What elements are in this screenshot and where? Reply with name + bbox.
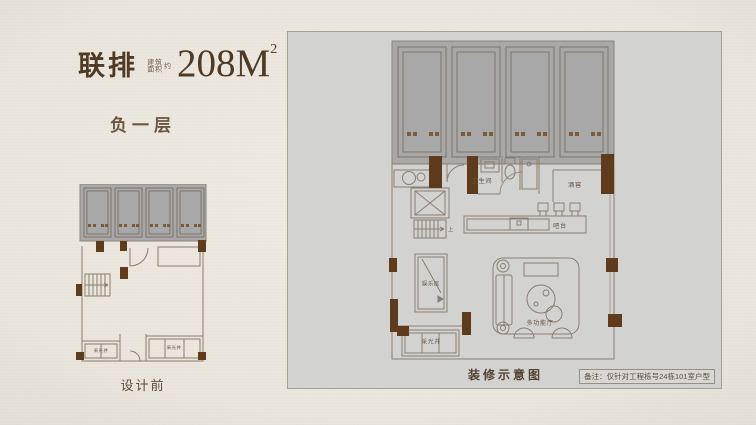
before-plan-svg (72, 184, 212, 368)
room-label-bathroom: 卫生间 (472, 175, 492, 184)
garage-panels (80, 184, 206, 241)
floor-label: 负一层 (73, 111, 213, 136)
bar-counter (464, 203, 586, 233)
decor-diagram-panel: 卫生间 酒窖 吧台 上 娱乐区 多功能厅 采光井 装修示意图 备注：仅针对工程栋… (287, 31, 722, 389)
after-plan-svg (288, 32, 721, 388)
area-label-suffix: 约 (164, 60, 171, 70)
walls (82, 241, 203, 361)
room-label-wine-cellar: 酒窖 (568, 179, 582, 188)
area-approx-label: 建筑 面积 约 (145, 57, 172, 75)
garage-panels (392, 41, 614, 164)
area-superscript: 2 (270, 42, 277, 58)
page-title: 联排 (78, 44, 138, 83)
room-label-stairs-up: 上 (448, 225, 454, 233)
room-label-multi-function: 多功能厅 (526, 317, 553, 326)
room-label-light-well-left: 采光井 (94, 347, 109, 354)
title-block: 联排 建筑 面积 约 208M 2 (78, 44, 277, 83)
stairs (414, 220, 446, 238)
room-label-bar: 吧台 (553, 220, 567, 229)
brochure-page: 联排 建筑 面积 约 208M 2 负一层 (0, 0, 756, 425)
disclaimer-note: 备注：仅针对工程栋号24栋101室户型 (579, 369, 715, 384)
before-caption: 设计前 (83, 375, 203, 394)
before-floor-plan: 采光井 采光井 (72, 184, 212, 368)
elevator (411, 188, 449, 218)
room-label-light-well: 采光井 (421, 337, 440, 346)
room-label-light-well-right: 采光井 (167, 344, 182, 351)
area-label-line2: 面积 (147, 66, 163, 73)
area-value: 208M (177, 46, 270, 82)
room-label-entertainment: 娱乐区 (422, 279, 440, 287)
wall-blocks (76, 240, 206, 360)
